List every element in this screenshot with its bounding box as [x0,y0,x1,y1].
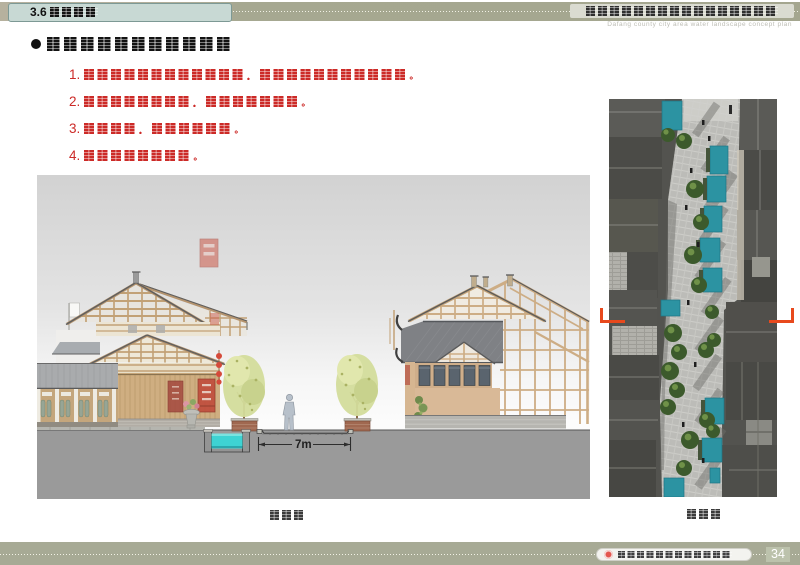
svg-text:7m: 7m [295,439,312,451]
